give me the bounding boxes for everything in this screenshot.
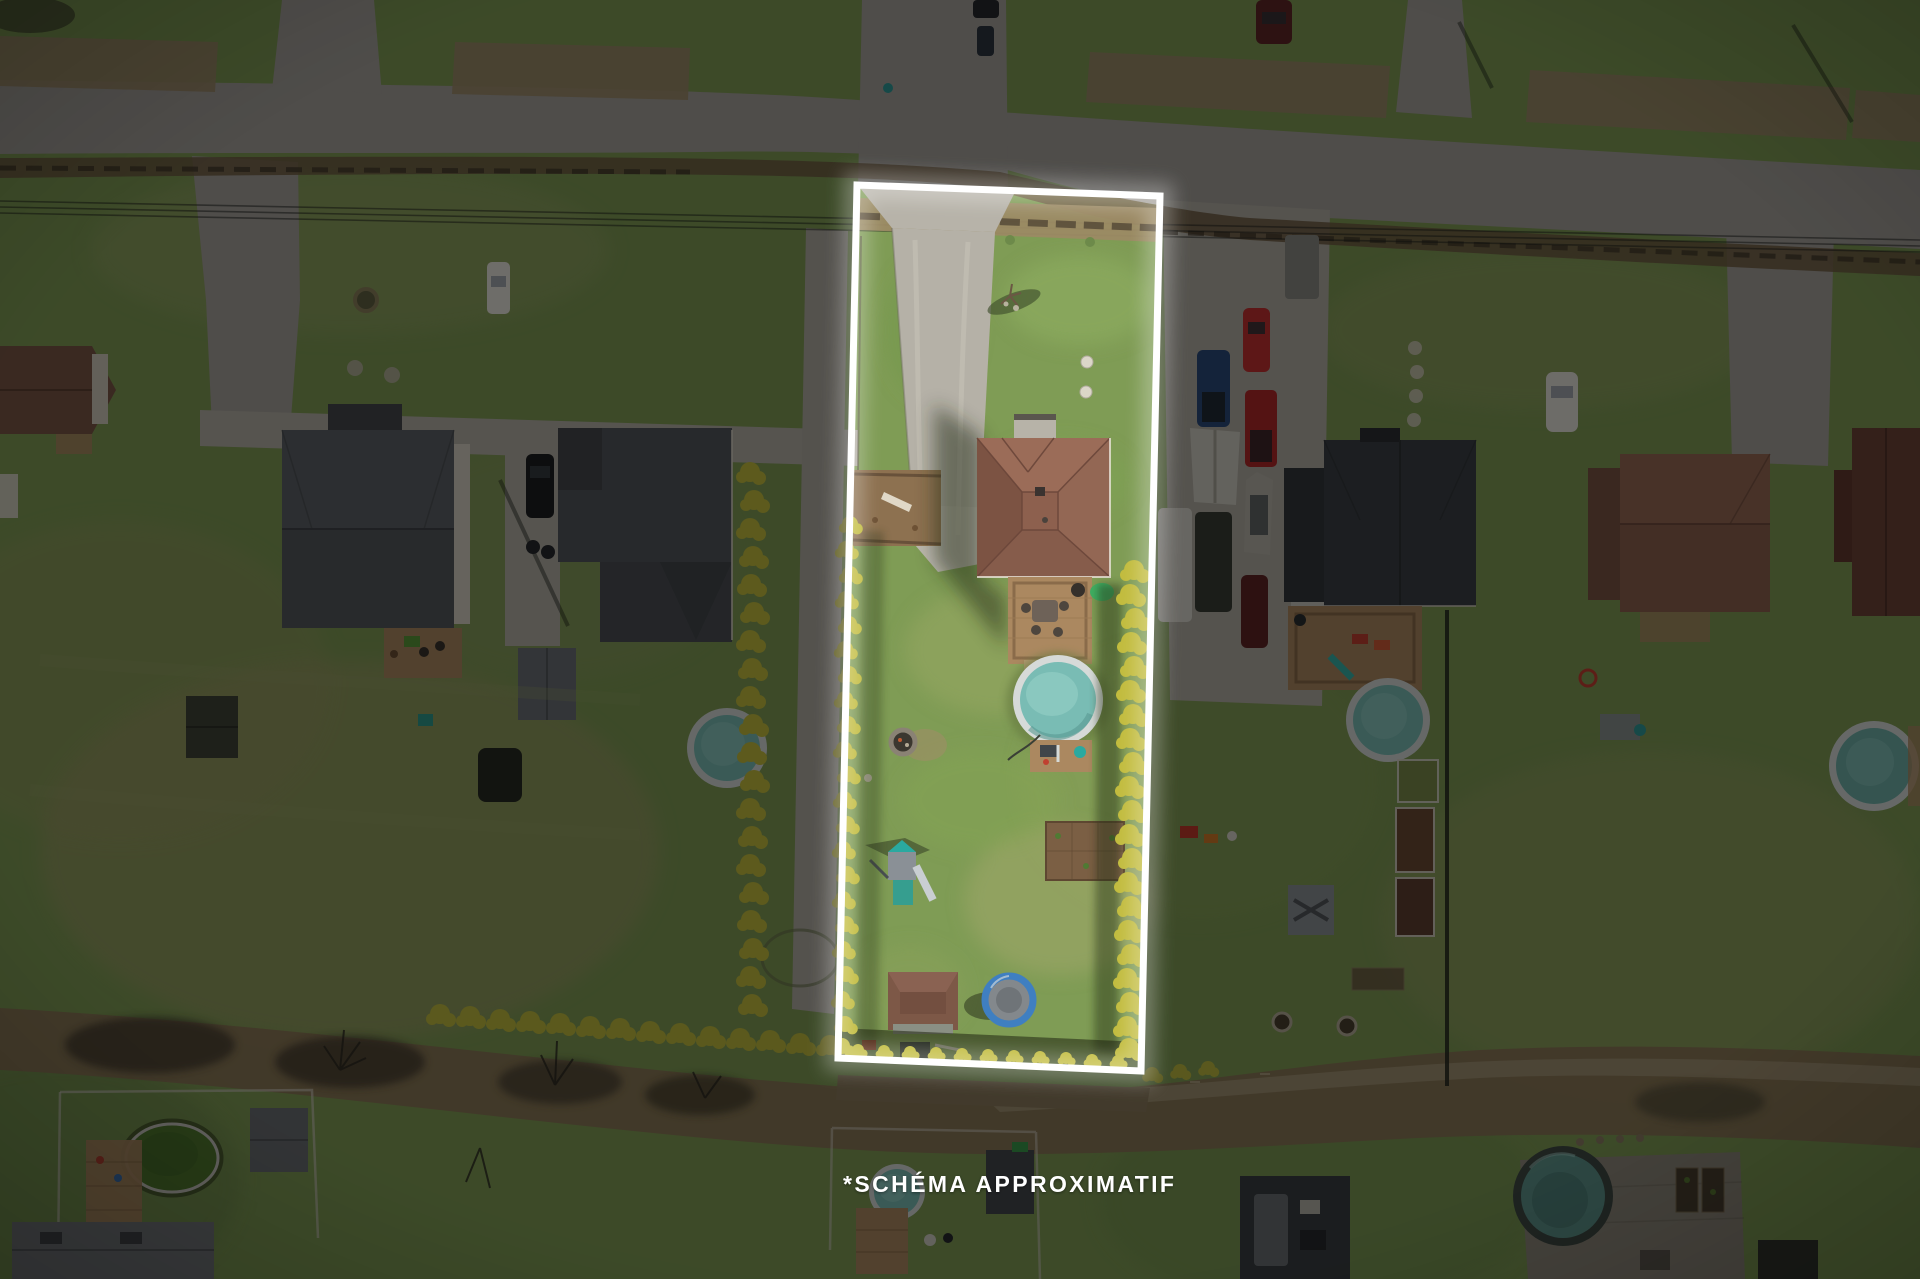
aerial-photo: *SCHÉMA APPROXIMATIF: [0, 0, 1920, 1279]
aerial-scene: [0, 0, 1920, 1279]
caption-schema-approximatif: *SCHÉMA APPROXIMATIF: [843, 1171, 1176, 1198]
